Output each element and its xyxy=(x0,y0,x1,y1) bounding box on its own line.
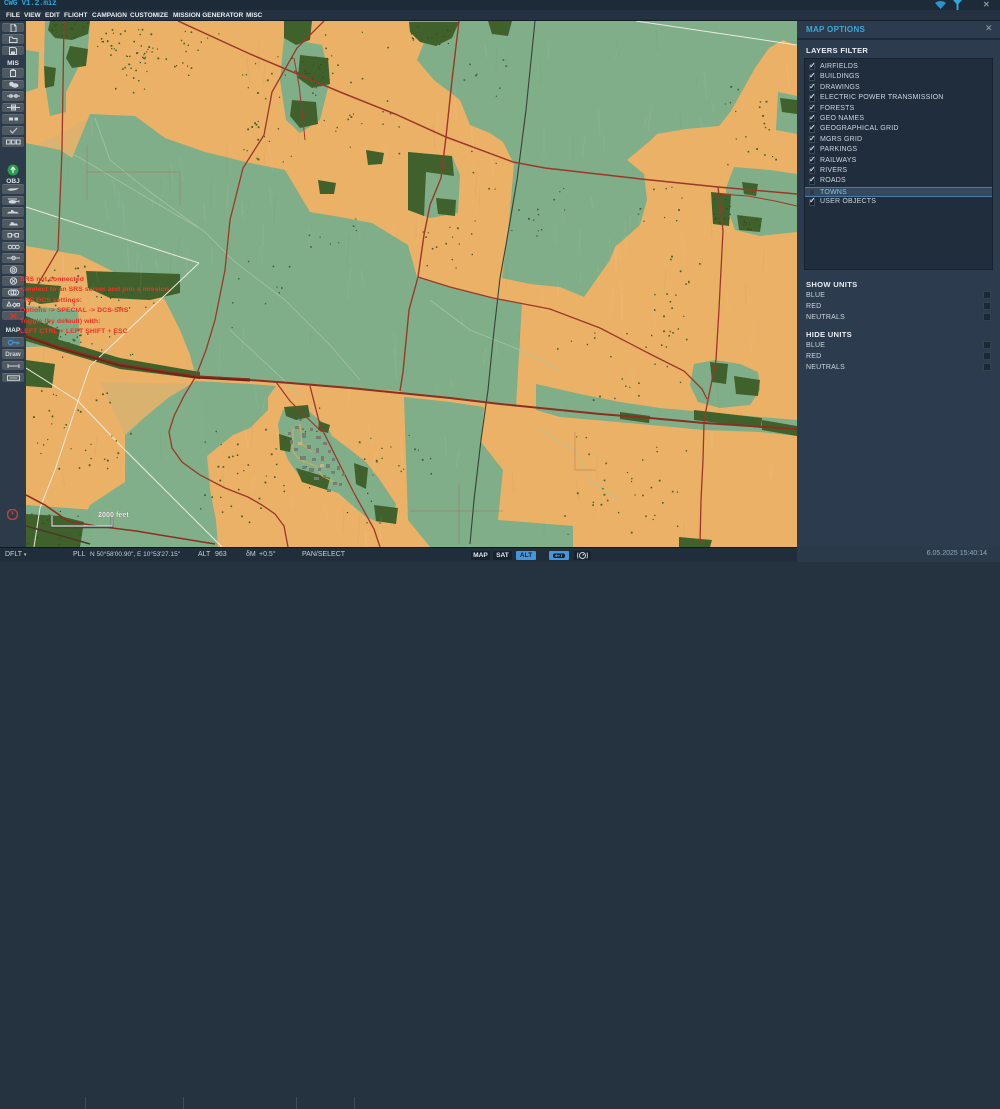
svg-text:2000 feet: 2000 feet xyxy=(98,510,129,519)
